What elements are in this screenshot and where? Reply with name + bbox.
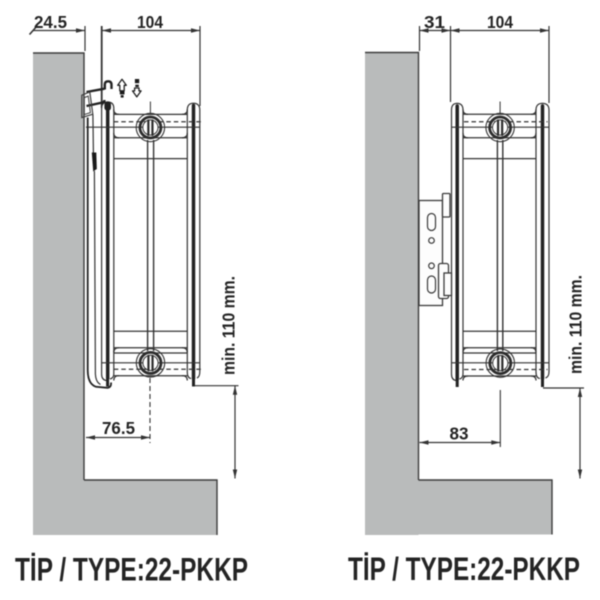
svg-text:24.5: 24.5 (34, 12, 67, 32)
svg-text:104: 104 (137, 12, 163, 32)
svg-text:min. 110 mm.: min. 110 mm. (566, 275, 586, 374)
svg-text:min. 110 mm.: min. 110 mm. (219, 276, 239, 375)
svg-text:83: 83 (450, 424, 469, 444)
svg-text:104: 104 (487, 12, 513, 32)
svg-text:TİP / TYPE:22-PKKP: TİP / TYPE:22-PKKP (348, 551, 580, 587)
svg-text:76.5: 76.5 (102, 418, 135, 438)
svg-text:31: 31 (424, 12, 445, 32)
svg-text:TİP / TYPE:22-PKKP: TİP / TYPE:22-PKKP (15, 552, 248, 588)
